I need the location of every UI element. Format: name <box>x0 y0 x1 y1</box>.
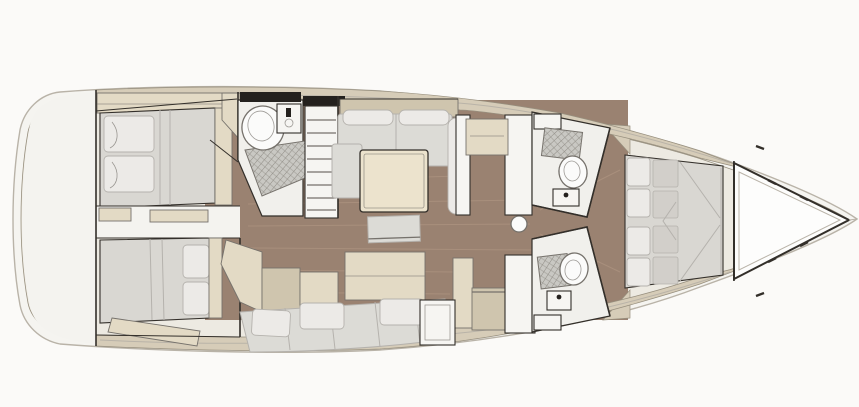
pillow <box>183 245 209 278</box>
settee-pillow <box>251 309 290 337</box>
fwd-head-bottom-sink <box>547 291 571 310</box>
aft-cabin-bottom-headboard <box>209 238 222 318</box>
fwd-head-bottom-cabinet <box>534 315 561 330</box>
pillow <box>627 189 650 217</box>
cabin-divider <box>96 206 240 238</box>
fwd-head-top-cabinet <box>534 114 561 129</box>
pillow <box>627 227 650 255</box>
divider-locker <box>150 210 208 222</box>
pillow <box>627 158 650 186</box>
bow <box>734 146 857 296</box>
pillow <box>627 258 650 286</box>
quilt-panel <box>653 160 678 187</box>
aft-cabin-top <box>97 93 240 208</box>
mast-post <box>511 216 527 232</box>
sofa-back-cushion <box>343 110 393 125</box>
bow-sail-locker <box>734 163 849 279</box>
fridge-unit <box>505 255 535 333</box>
galley-counter <box>472 288 505 330</box>
door-pillar-right <box>505 115 532 215</box>
aft-head-window <box>240 92 301 102</box>
settee-pillow <box>380 299 424 325</box>
quilt-panel <box>653 226 678 253</box>
door-lintel-cabinet <box>466 119 508 155</box>
galley-side-table <box>262 268 300 312</box>
divider-locker <box>99 208 131 221</box>
yacht-floor-plan <box>0 0 859 407</box>
aft-head-faucet <box>286 108 291 117</box>
floor-plan-stage <box>0 0 859 407</box>
pillow <box>183 282 209 315</box>
dining-table <box>360 150 428 212</box>
owner-cabin <box>625 155 723 288</box>
fwd-head-top-sink <box>553 189 579 206</box>
sofa-back-cushion <box>399 110 449 125</box>
pillow <box>104 156 154 192</box>
sofa-chaise <box>332 144 362 198</box>
settee-pillow <box>300 303 344 329</box>
quilt-panel <box>653 257 678 284</box>
galley-counter-tall <box>453 258 473 328</box>
stern-platform <box>22 92 96 344</box>
pillow <box>104 116 154 152</box>
